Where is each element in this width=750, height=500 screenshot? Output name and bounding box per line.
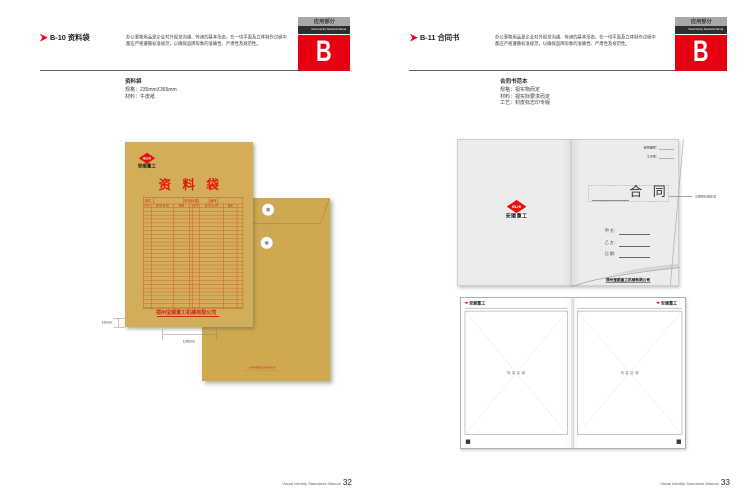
svg-text:单位: 单位	[144, 198, 151, 203]
svg-text:本资料袋: 本资料袋	[184, 198, 198, 203]
svg-text:序号: 序号	[193, 203, 199, 207]
svg-text:序号: 序号	[144, 203, 150, 207]
svg-text:BLHI: BLHI	[513, 204, 522, 208]
svg-text:资 料 名 称: 资 料 名 称	[155, 203, 168, 207]
svg-text:安顺重工: 安顺重工	[469, 300, 485, 306]
svg-text:资 料 名 称: 资 料 名 称	[204, 203, 217, 207]
svg-text:数量: 数量	[227, 203, 233, 207]
svg-text:编号: 编号	[210, 198, 217, 203]
svg-text:安顺重工: 安顺重工	[506, 212, 528, 219]
svg-text:安顺重工: 安顺重工	[661, 300, 677, 306]
svg-text:内 容 区 域: 内 容 区 域	[507, 370, 526, 375]
svg-text:㊣ 郑州宝顺重工机械有限公司: ㊣ 郑州宝顺重工机械有限公司	[248, 366, 276, 370]
svg-text:数量: 数量	[179, 203, 185, 207]
svg-text:安顺重工: 安顺重工	[138, 162, 157, 169]
svg-text:内 容 区 域: 内 容 区 域	[620, 370, 639, 375]
svg-text:BLHI: BLHI	[143, 156, 151, 160]
